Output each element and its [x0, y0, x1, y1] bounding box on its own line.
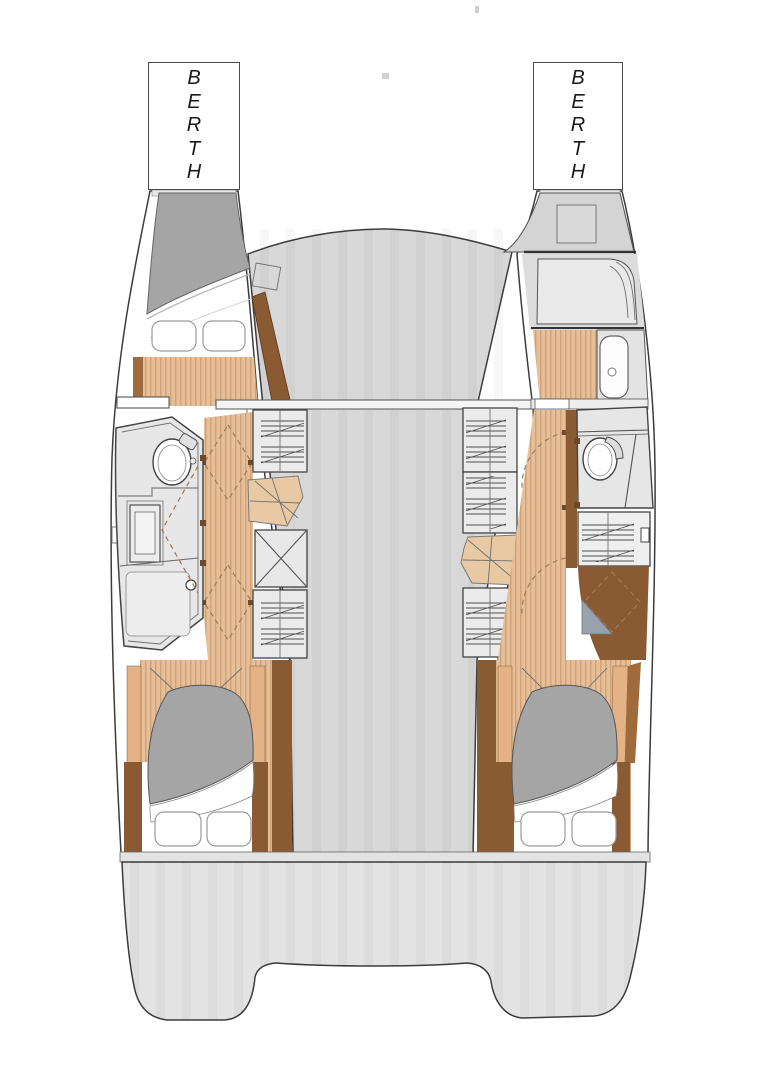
faint-print-mark: [382, 73, 389, 79]
foredeck: [248, 229, 514, 408]
starboard-divider-notch: [535, 399, 569, 409]
port-forward-vanity: [117, 397, 169, 408]
port-side-column: [127, 666, 141, 763]
starboard-bow-hatch: [557, 205, 596, 243]
catamaran-floor-plan: BERTH BERTH: [0, 0, 763, 1080]
port-corridor-floor: [204, 412, 253, 660]
port-side-post: [124, 762, 142, 855]
starboard-berth-label: BERTH: [570, 67, 586, 185]
pillow: [152, 321, 196, 351]
plan-svg: [0, 0, 763, 1080]
pillow: [203, 321, 245, 351]
pillow: [155, 812, 201, 846]
aft-platform-shading: [122, 862, 646, 1020]
port-shower-pan: [126, 572, 190, 636]
port-berth-box: BERTH: [148, 62, 240, 190]
pillow: [572, 812, 616, 846]
faint-print-mark: [475, 6, 479, 13]
door-hinge: [200, 560, 206, 566]
port-berth-label: BERTH: [186, 67, 202, 185]
starboard-partition-wall: [566, 410, 577, 568]
stern: [120, 852, 650, 1020]
door-hinge: [574, 438, 580, 444]
foredeck-shading: [248, 229, 514, 408]
starboard-inner-post: [496, 762, 514, 855]
bathtub: [600, 336, 628, 398]
starboard-berth-box: BERTH: [533, 62, 623, 190]
door-hinge: [200, 455, 206, 461]
door-hinge: [574, 502, 580, 508]
port-furniture-column: [248, 410, 307, 658]
door-hinge: [248, 600, 253, 605]
pillow: [521, 812, 565, 846]
starboard-locker-louvers: [582, 516, 638, 562]
saloon-shading: [293, 410, 475, 853]
door-hinge: [248, 460, 253, 465]
starboard-saloon-wall: [477, 660, 496, 855]
port-sink-basin: [135, 512, 155, 554]
starboard-bathroom: [574, 407, 653, 508]
port-bathroom: [115, 417, 206, 650]
port-shower-drain: [186, 580, 196, 590]
locker-handle: [641, 528, 649, 542]
port-saloon-wall: [272, 660, 292, 855]
door-hinge: [200, 520, 206, 526]
starboard-bath-floor: [533, 330, 597, 404]
starboard-inner-column: [498, 666, 512, 763]
starboard-aft-cabin: [477, 660, 641, 855]
pillow: [207, 812, 251, 846]
port-aft-cabin: [124, 660, 292, 855]
transom-band: [120, 852, 650, 862]
port-corridor: [201, 412, 253, 660]
starboard-forepeak-berth: [537, 259, 637, 324]
port-toilet-flush: [190, 458, 196, 464]
